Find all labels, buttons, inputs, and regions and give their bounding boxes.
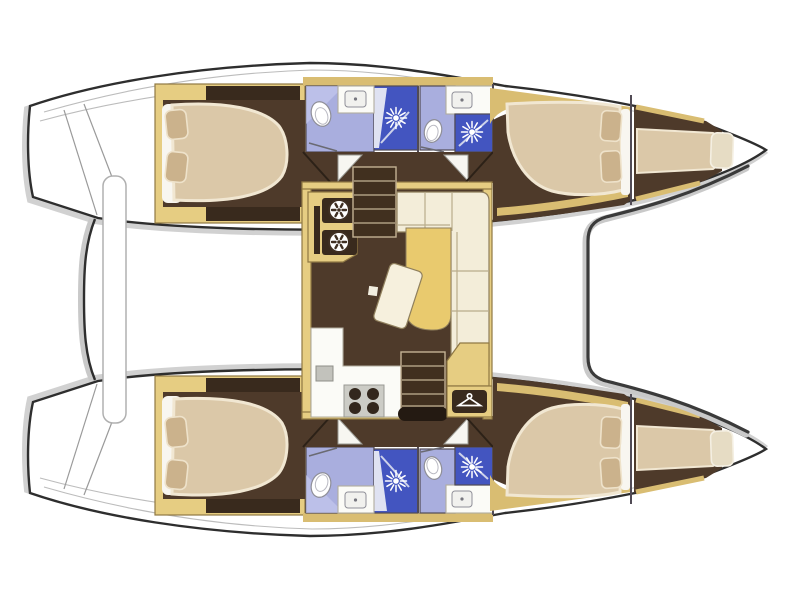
pillow [164, 151, 188, 183]
aft-cabin-locker [206, 86, 300, 100]
wardrobe [447, 343, 492, 417]
table-chip [368, 286, 378, 296]
pillow [165, 109, 189, 140]
pillow [710, 133, 733, 169]
stove-top [344, 385, 384, 417]
aft-bathroom [306, 86, 418, 152]
forward-stairs [353, 167, 396, 237]
hull-corridor [303, 152, 493, 183]
coachroof-band [303, 77, 493, 86]
bathrooms [303, 77, 493, 152]
aft-cabin-locker [206, 207, 300, 221]
forward-cabin [490, 88, 631, 222]
aft-cabin [155, 84, 305, 223]
aft-stairs [398, 352, 448, 421]
catamaran-layout-diagram: Catamaran sailing yacht interior layout … [0, 0, 799, 599]
stairs-icon [401, 352, 445, 412]
galley-slot [314, 206, 320, 254]
bed-sheet [621, 109, 630, 195]
stairs-icon [353, 167, 396, 237]
salon [302, 167, 492, 421]
pillow [600, 110, 622, 141]
galley-unit [308, 192, 357, 262]
sink-icon [316, 366, 333, 381]
drain-dot [354, 97, 357, 100]
aft-crossbeam-bar [103, 176, 126, 423]
aft-cabin-bed [172, 104, 287, 201]
pillow [600, 150, 622, 182]
stair-landing [398, 407, 448, 421]
yacht-floor-plan-page: Catamaran sailing yacht interior layout … [0, 0, 799, 599]
bow-berth-mattress [637, 129, 718, 173]
forward-bathroom [420, 86, 493, 152]
drain-dot [460, 98, 463, 101]
